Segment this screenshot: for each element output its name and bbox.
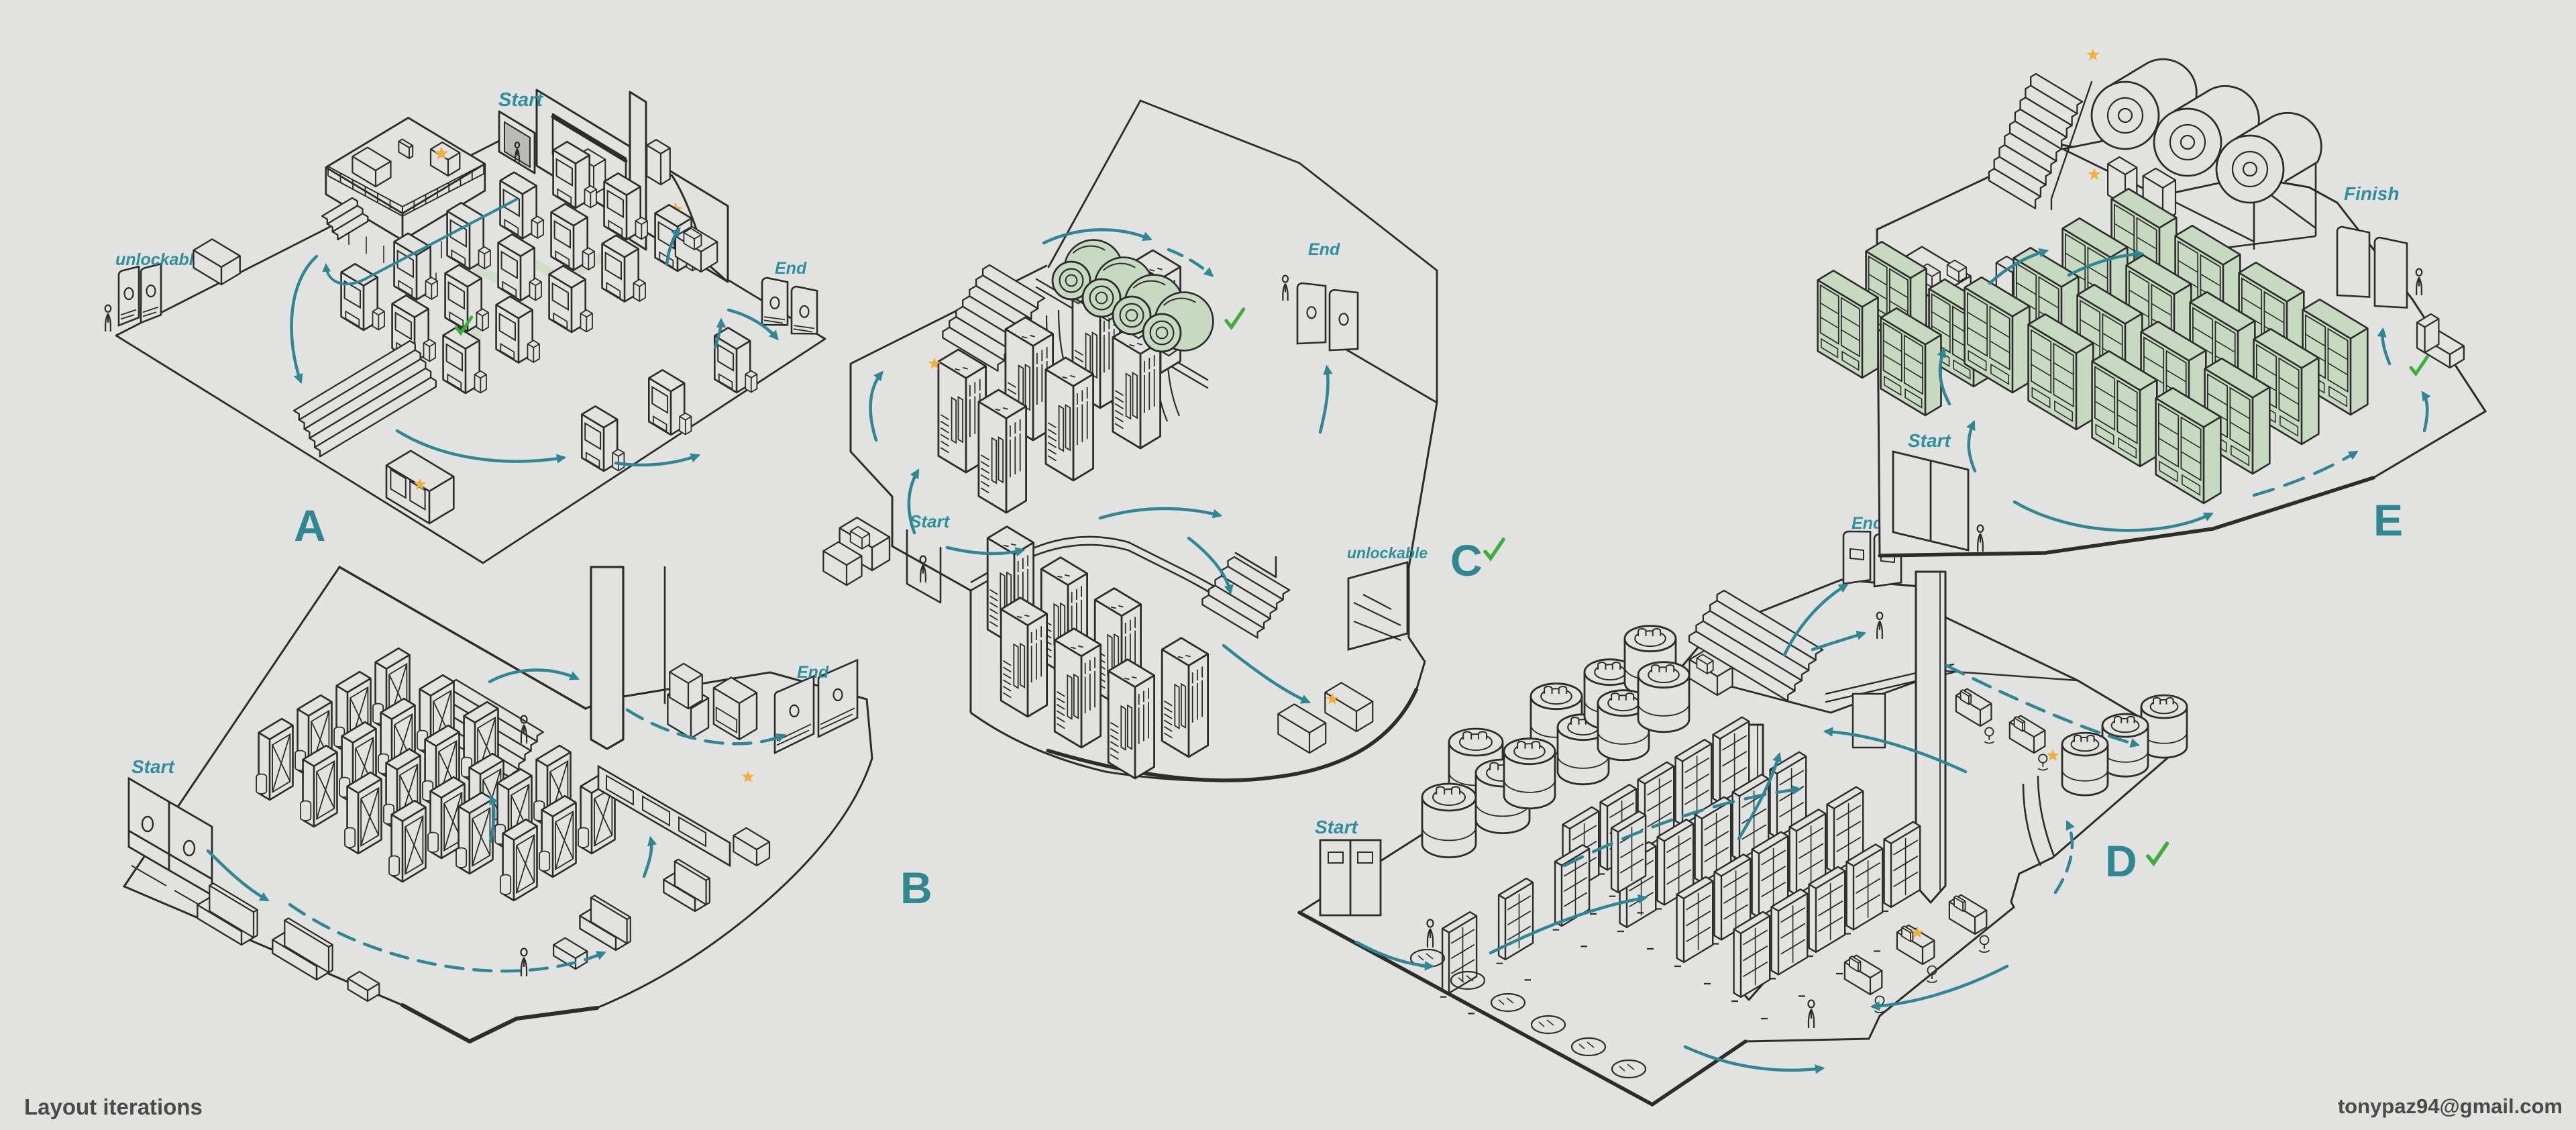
svg-text:End: End — [797, 663, 829, 682]
svg-text:D: D — [2105, 836, 2137, 886]
svg-text:C: C — [1450, 535, 1483, 585]
svg-text:Start: Start — [910, 511, 951, 531]
svg-text:unlockable: unlockable — [115, 250, 203, 269]
svg-text:Finish: Finish — [2344, 183, 2399, 204]
svg-text:B: B — [900, 863, 932, 913]
svg-text:Start: Start — [1315, 817, 1358, 837]
svg-text:unlockable: unlockable — [1347, 544, 1428, 562]
svg-text:End: End — [1308, 240, 1340, 259]
svg-text:E: E — [2373, 495, 2403, 545]
svg-text:Layout iterations: Layout iterations — [24, 1094, 203, 1119]
svg-text:End: End — [775, 259, 807, 278]
svg-text:Start: Start — [131, 756, 175, 777]
svg-text:A: A — [294, 501, 326, 550]
svg-text:Start: Start — [1908, 430, 1951, 451]
svg-text:tonypaz94@gmail.com: tonypaz94@gmail.com — [2338, 1094, 2563, 1118]
svg-text:Start: Start — [498, 89, 543, 111]
